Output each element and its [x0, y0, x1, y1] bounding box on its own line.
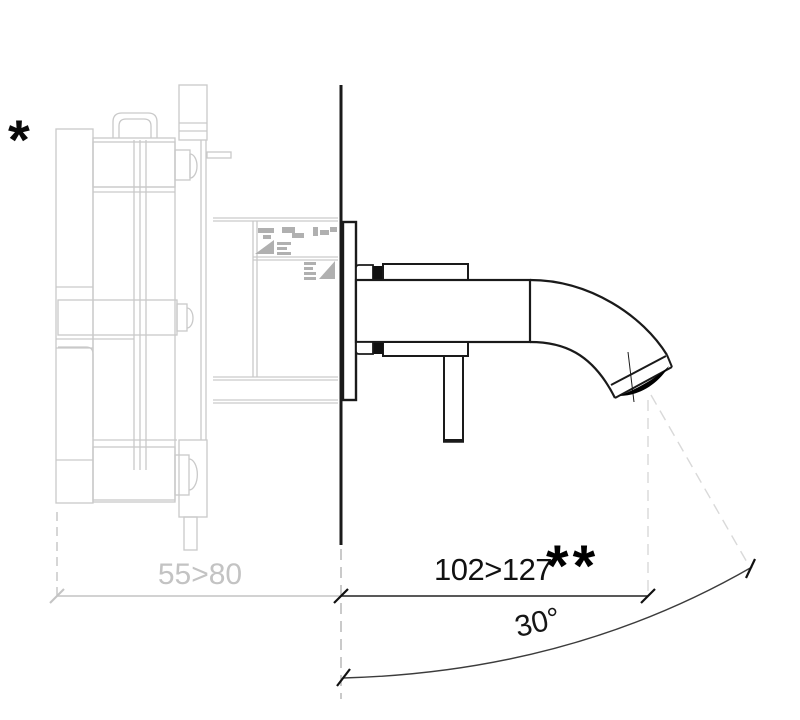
drawing-linework: [0, 0, 800, 720]
spout-curve-inner: [530, 342, 615, 398]
dimension-label-spout-projection: 102>127: [434, 554, 552, 585]
rough-in-section-details: [255, 227, 337, 280]
spout-handle: [444, 356, 463, 440]
technical-drawing-canvas: * 55>80 102>127 ** 30°: [0, 0, 800, 720]
spout-body: [356, 280, 530, 342]
wall-plate: [343, 222, 356, 400]
footnote-marker-secondary: **: [546, 538, 599, 596]
footnote-marker-primary: *: [8, 112, 30, 168]
spout-fixture: [343, 222, 672, 441]
rough-in-valve-body: [56, 85, 338, 550]
dimension-label-in-wall-depth: 55>80: [152, 560, 248, 590]
